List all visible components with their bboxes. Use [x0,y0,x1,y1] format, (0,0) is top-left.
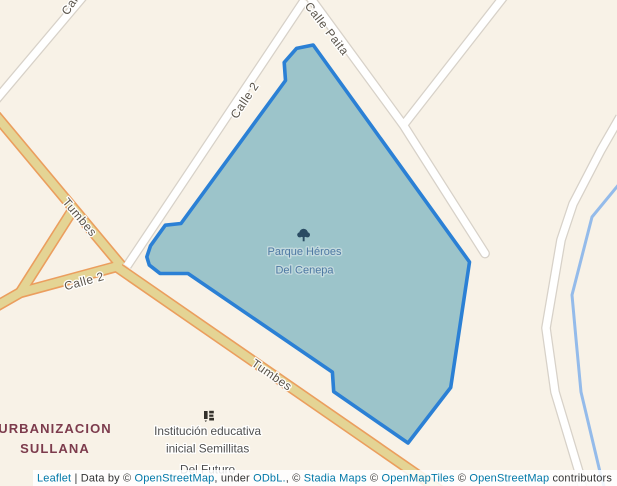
svg-text:inicial Semillitas: inicial Semillitas [166,441,249,455]
svg-text:SULLANA: SULLANA [20,441,90,456]
svg-text:Parque Héroes: Parque Héroes [268,246,342,258]
svg-text:URBANIZACION: URBANIZACION [0,421,112,436]
svg-text:Leaflet | Data by © OpenStreet: Leaflet | Data by © OpenStreetMap, under… [37,473,612,485]
svg-text:Del Cenepa: Del Cenepa [275,265,334,277]
svg-text:Institución educativa: Institución educativa [154,424,261,438]
